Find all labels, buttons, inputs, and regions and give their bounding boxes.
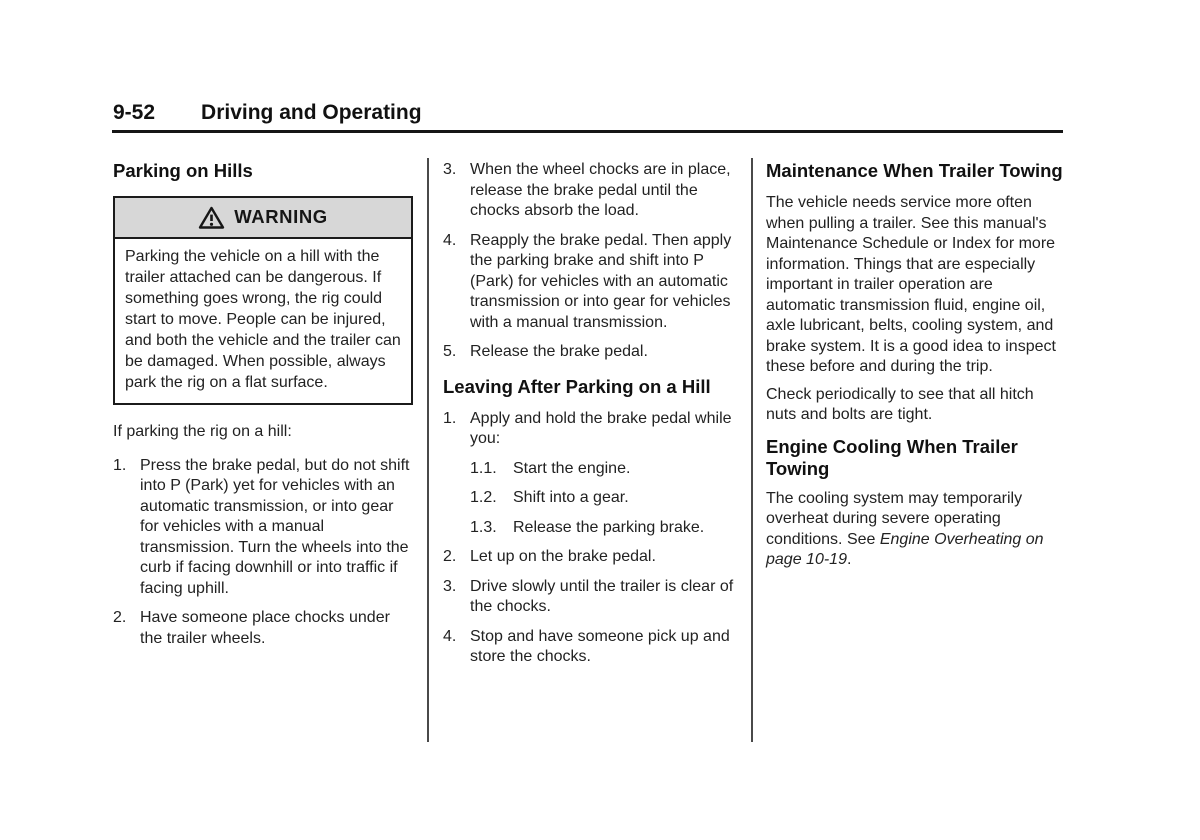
- list-item-number: 1.: [113, 456, 140, 600]
- sublist-item: 1.1. Start the engine.: [470, 459, 739, 480]
- list-item-text: Press the brake pedal, but do not shift …: [140, 456, 413, 600]
- page-header: 9-52Driving and Operating: [113, 101, 422, 125]
- list-item: 1. Press the brake pedal, but do not shi…: [113, 456, 413, 600]
- list-item-number: 3.: [443, 160, 470, 222]
- section-heading-engine-cooling-when-trailer-towing: Engine Cooling When Trailer Towing: [766, 436, 1064, 480]
- parking-steps-list-continued: 3. When the wheel chocks are in place, r…: [443, 160, 739, 363]
- warning-triangle-icon: [198, 206, 225, 230]
- list-item-text-lead: Apply and hold the brake pedal while you…: [470, 410, 732, 448]
- list-item-number: 4.: [443, 231, 470, 334]
- list-item-number: 2.: [113, 608, 140, 649]
- hitch-check-paragraph: Check periodically to see that all hitch…: [766, 385, 1064, 426]
- manual-page: 9-52Driving and Operating Parking on Hil…: [0, 0, 1200, 840]
- list-item-number: 2.: [443, 547, 470, 568]
- sublist-item-number: 1.1.: [470, 459, 513, 480]
- warning-box: WARNING Parking the vehicle on a hill wi…: [113, 196, 413, 405]
- cooling-paragraph: The cooling system may temporarily overh…: [766, 489, 1064, 571]
- section-heading-maintenance-when-trailer-towing: Maintenance When Trailer Towing: [766, 160, 1064, 182]
- list-item: 4. Stop and have someone pick up and sto…: [443, 627, 739, 668]
- list-item-text: When the wheel chocks are in place, rele…: [470, 160, 739, 222]
- column-middle: 3. When the wheel chocks are in place, r…: [443, 160, 739, 668]
- page-number: 9-52: [113, 101, 155, 124]
- list-item: 3. Drive slowly until the trailer is cle…: [443, 577, 739, 618]
- sublist-item-text: Shift into a gear.: [513, 488, 629, 509]
- list-item-text: Apply and hold the brake pedal while you…: [470, 409, 739, 539]
- list-item: 3. When the wheel chocks are in place, r…: [443, 160, 739, 222]
- list-item-text: Drive slowly until the trailer is clear …: [470, 577, 739, 618]
- sublist-item-number: 1.2.: [470, 488, 513, 509]
- list-item: 2. Have someone place chocks under the t…: [113, 608, 413, 649]
- column-divider-right: [751, 158, 753, 742]
- warning-body-text: Parking the vehicle on a hill with the t…: [115, 239, 411, 403]
- cooling-paragraph-period: .: [847, 551, 851, 568]
- leaving-steps-list: 1. Apply and hold the brake pedal while …: [443, 409, 739, 668]
- list-item-number: 3.: [443, 577, 470, 618]
- warning-label: WARNING: [234, 207, 328, 228]
- warning-box-header: WARNING: [115, 198, 411, 239]
- list-item-text: Release the brake pedal.: [470, 342, 739, 363]
- list-item: 5. Release the brake pedal.: [443, 342, 739, 363]
- list-item-number: 1.: [443, 409, 470, 539]
- list-item-text: Let up on the brake pedal.: [470, 547, 739, 568]
- sublist-item-text: Start the engine.: [513, 459, 630, 480]
- sublist-item: 1.3. Release the parking brake.: [470, 518, 739, 539]
- column-divider-left: [427, 158, 429, 742]
- sublist-item-number: 1.3.: [470, 518, 513, 539]
- intro-text: If parking the rig on a hill:: [113, 422, 413, 443]
- maintenance-paragraph: The vehicle needs service more often whe…: [766, 193, 1064, 378]
- column-left: Parking on Hills WARNING Parking the veh…: [113, 160, 413, 649]
- sublist-item: 1.2. Shift into a gear.: [470, 488, 739, 509]
- column-right: Maintenance When Trailer Towing The vehi…: [766, 160, 1064, 571]
- section-heading-leaving-after-parking: Leaving After Parking on a Hill: [443, 376, 739, 398]
- list-item-text: Have someone place chocks under the trai…: [140, 608, 413, 649]
- chapter-title: Driving and Operating: [201, 101, 422, 124]
- substeps-list: 1.1. Start the engine. 1.2. Shift into a…: [470, 459, 739, 539]
- section-heading-parking-on-hills: Parking on Hills: [113, 160, 413, 182]
- sublist-item-text: Release the parking brake.: [513, 518, 704, 539]
- list-item-number: 4.: [443, 627, 470, 668]
- list-item: 2. Let up on the brake pedal.: [443, 547, 739, 568]
- list-item: 4. Reapply the brake pedal. Then apply t…: [443, 231, 739, 334]
- list-item-number: 5.: [443, 342, 470, 363]
- header-rule: [112, 130, 1063, 133]
- list-item-text: Stop and have someone pick up and store …: [470, 627, 739, 668]
- list-item-text: Reapply the brake pedal. Then apply the …: [470, 231, 739, 334]
- list-item: 1. Apply and hold the brake pedal while …: [443, 409, 739, 539]
- parking-steps-list: 1. Press the brake pedal, but do not shi…: [113, 456, 413, 650]
